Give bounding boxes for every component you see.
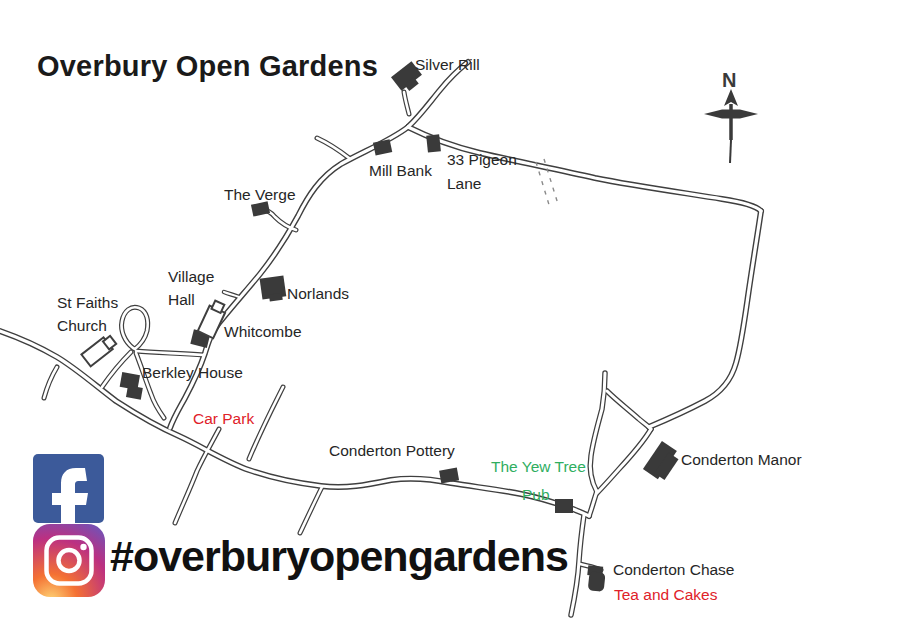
yew-tree-pub-building bbox=[555, 499, 573, 513]
map-canvas: N Silver Rill Mill Bank 33 Pigeon Lane T… bbox=[0, 0, 900, 636]
label-conderton-chase: Conderton Chase bbox=[613, 561, 735, 578]
compass-north-label: N bbox=[722, 69, 736, 91]
label-yew-tree-line2: Pub bbox=[522, 486, 550, 503]
label-st-faiths-line1: St Faiths bbox=[57, 294, 118, 311]
label-yew-tree-line1: The Yew Tree bbox=[491, 458, 586, 475]
label-33-pigeon-line2: Lane bbox=[447, 175, 481, 192]
label-33-pigeon-line1: 33 Pigeon bbox=[447, 151, 517, 168]
label-mill-bank: Mill Bank bbox=[369, 162, 432, 179]
label-village-hall-line2: Hall bbox=[168, 291, 195, 308]
label-st-faiths-line2: Church bbox=[57, 317, 107, 334]
page-title: Overbury Open Gardens bbox=[37, 50, 378, 82]
open-gardens-map-page: N Silver Rill Mill Bank 33 Pigeon Lane T… bbox=[0, 0, 900, 636]
pigeon-lane-building bbox=[426, 134, 441, 152]
hashtag-text: #overburyopengardens bbox=[110, 532, 568, 580]
label-silver-rill: Silver Rill bbox=[415, 56, 480, 73]
label-conderton-manor: Conderton Manor bbox=[681, 451, 802, 468]
label-whitcombe: Whitcombe bbox=[224, 323, 302, 340]
label-berkley-house: Berkley House bbox=[142, 364, 243, 381]
label-the-verge: The Verge bbox=[224, 186, 296, 203]
label-car-park: Car Park bbox=[193, 410, 254, 427]
label-conderton-pottery: Conderton Pottery bbox=[329, 442, 455, 459]
label-norlands: Norlands bbox=[287, 285, 349, 302]
label-tea-and-cakes: Tea and Cakes bbox=[614, 586, 718, 603]
label-village-hall-line1: Village bbox=[168, 268, 214, 285]
instagram-camera-icon bbox=[33, 524, 105, 597]
